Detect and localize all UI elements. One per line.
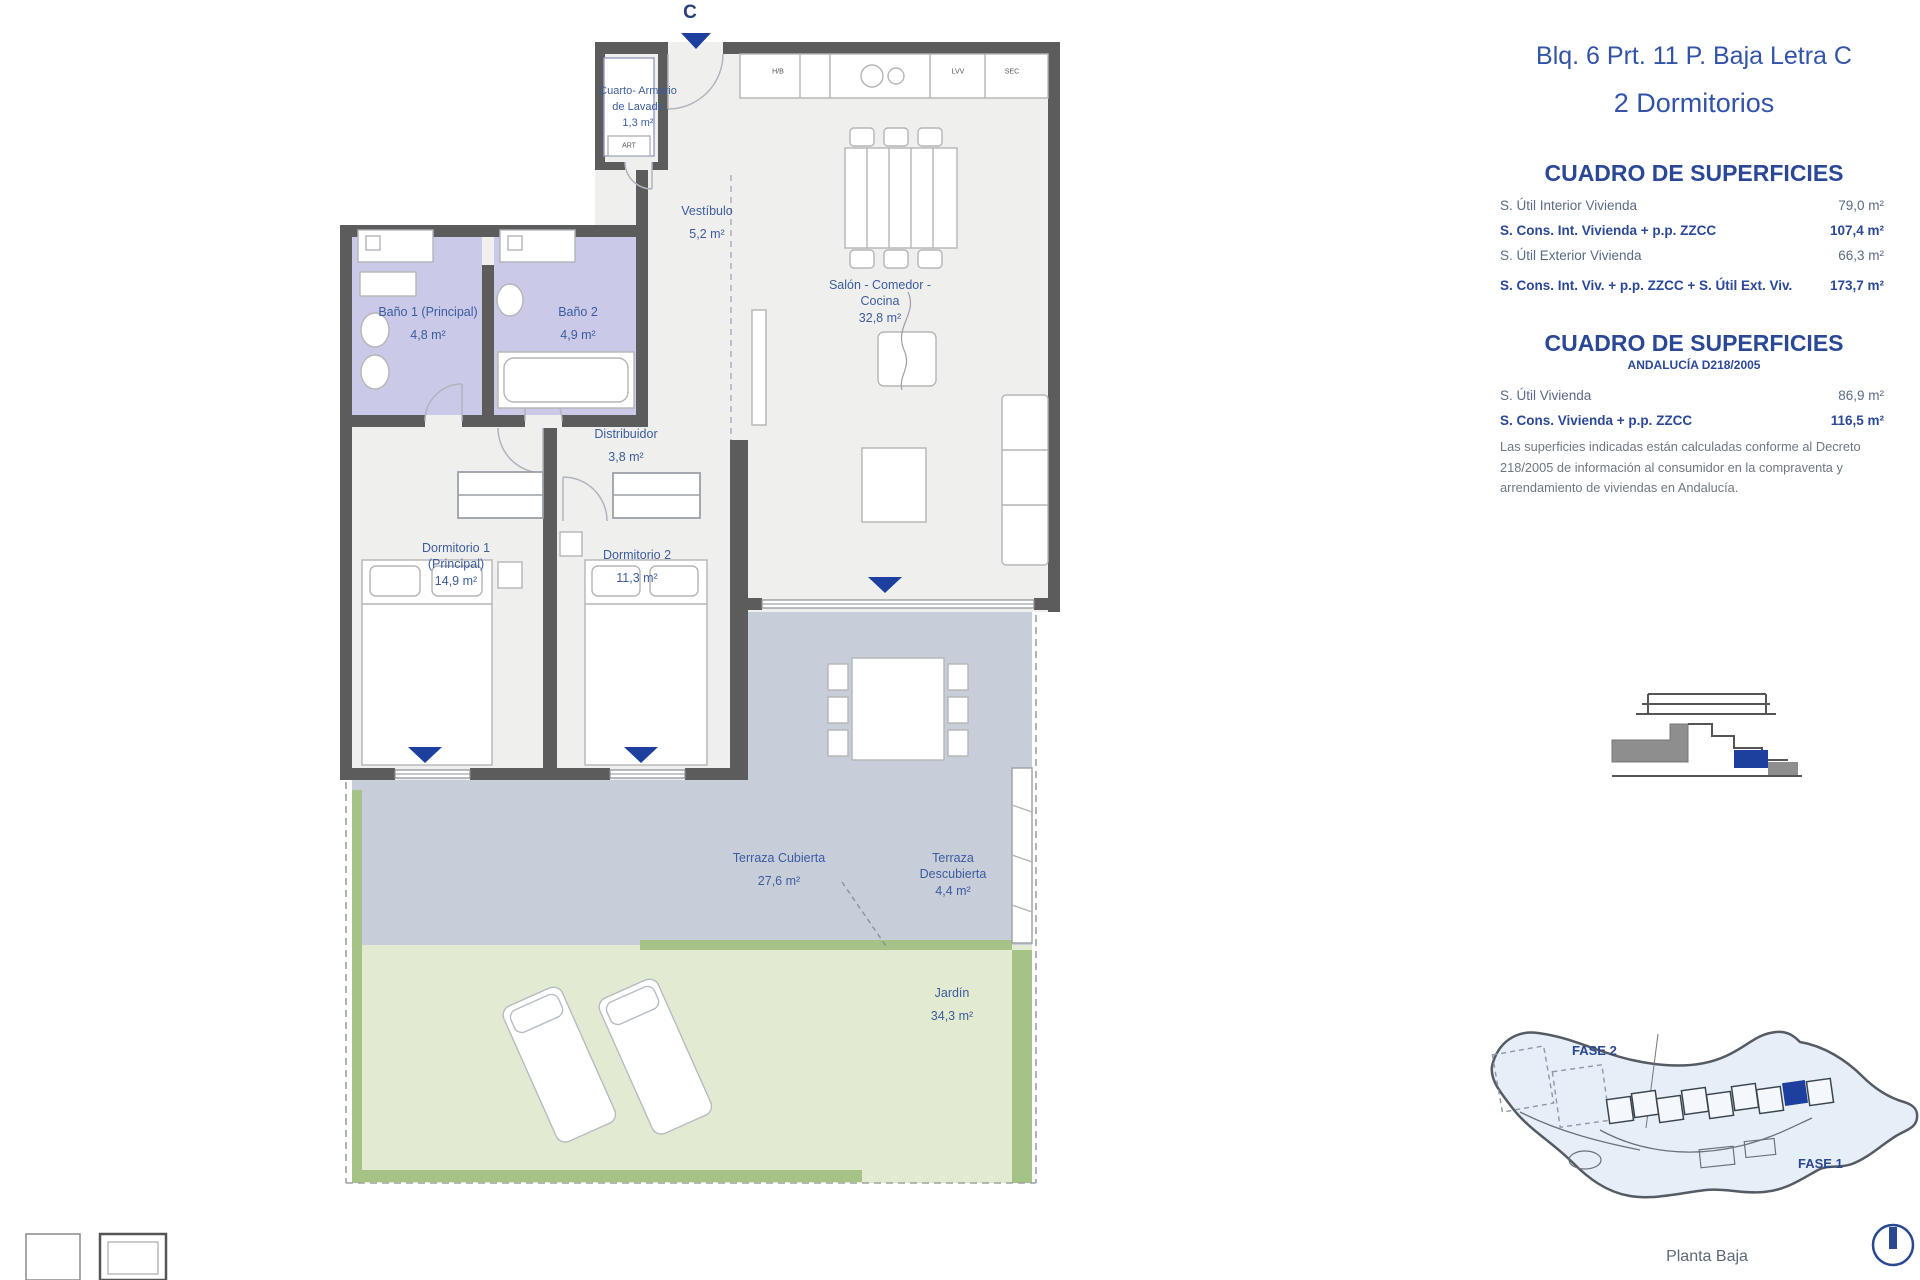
highlighted-unit-marker — [1783, 1081, 1808, 1106]
room-label-jardin: Jardín 34,3 m² — [931, 982, 973, 1028]
appliance-label-sec: SEC — [1005, 69, 1019, 76]
table-row: S. Útil Interior Vivienda 79,0 m² — [1500, 198, 1884, 213]
room-label-bano1: Baño 1 (Principal) 4,8 m² — [378, 301, 477, 347]
unit-title: Blq. 6 Prt. 11 P. Baja Letra C — [1500, 42, 1888, 71]
site-plan-caption: Planta Baja — [1666, 1248, 1748, 1266]
room-label-terraza-cubierta: Terraza Cubierta 27,6 m² — [733, 847, 825, 893]
room-label-dormitorio2: Dormitorio 2 11,3 m² — [603, 544, 671, 590]
room-label-distribuidor: Distribuidor 3,8 m² — [594, 423, 657, 469]
plan-letter-marker: C — [683, 2, 697, 24]
site-plan-drawing — [1492, 1032, 1917, 1197]
room-label-bano2: Baño 2 4,9 m² — [558, 301, 598, 347]
room-label-vestibulo: Vestíbulo 5,2 m² — [681, 200, 732, 246]
site-label-fase1: FASE 1 — [1798, 1156, 1843, 1171]
unit-subtitle: 2 Dormitorios — [1500, 88, 1888, 119]
site-label-fase2: FASE 2 — [1572, 1043, 1617, 1058]
room-label-terraza-descubierta: Terraza Descubierta 4,4 m² — [920, 850, 987, 899]
surface-table2-subheading: ANDALUCÍA D218/2005 — [1500, 358, 1888, 372]
plan-sheet: C Cuarto- Armario de Lavado 1,3 m² Vestí… — [0, 0, 1920, 1280]
building-section-drawing — [1612, 694, 1802, 776]
room-label-dormitorio1: Dormitorio 1 (Principal) 14,9 m² — [422, 540, 490, 589]
room-label-laundry: Cuarto- Armario de Lavado 1,3 m² — [599, 84, 677, 132]
appliance-label-lvv: LVV — [952, 69, 965, 76]
table-row: S. Útil Exterior Vivienda 66,3 m² — [1500, 248, 1884, 263]
appliance-label-art: ART — [622, 143, 636, 150]
surface-table-heading: CUADRO DE SUPERFICIES — [1500, 160, 1888, 187]
table-row: S. Cons. Int. Vivienda + p.p. ZZCC 107,4… — [1500, 223, 1884, 238]
legend-marks — [26, 1234, 166, 1280]
surface-table2-heading: CUADRO DE SUPERFICIES — [1500, 330, 1888, 357]
room-label-salon: Salón - Comedor - Cocina 32,8 m² — [829, 277, 931, 326]
legal-note: Las superficies indicadas están calculad… — [1500, 437, 1892, 499]
table-row: S. Cons. Vivienda + p.p. ZZCC 116,5 m² — [1500, 413, 1884, 428]
orientation-compass-icon — [1873, 1225, 1913, 1265]
table-row: S. Cons. Int. Viv. + p.p. ZZCC + S. Útil… — [1500, 278, 1884, 293]
appliance-label-hb: H/B — [772, 69, 784, 76]
floor-plan-drawing — [0, 0, 1920, 1280]
table-row: S. Útil Vivienda 86,9 m² — [1500, 388, 1884, 403]
